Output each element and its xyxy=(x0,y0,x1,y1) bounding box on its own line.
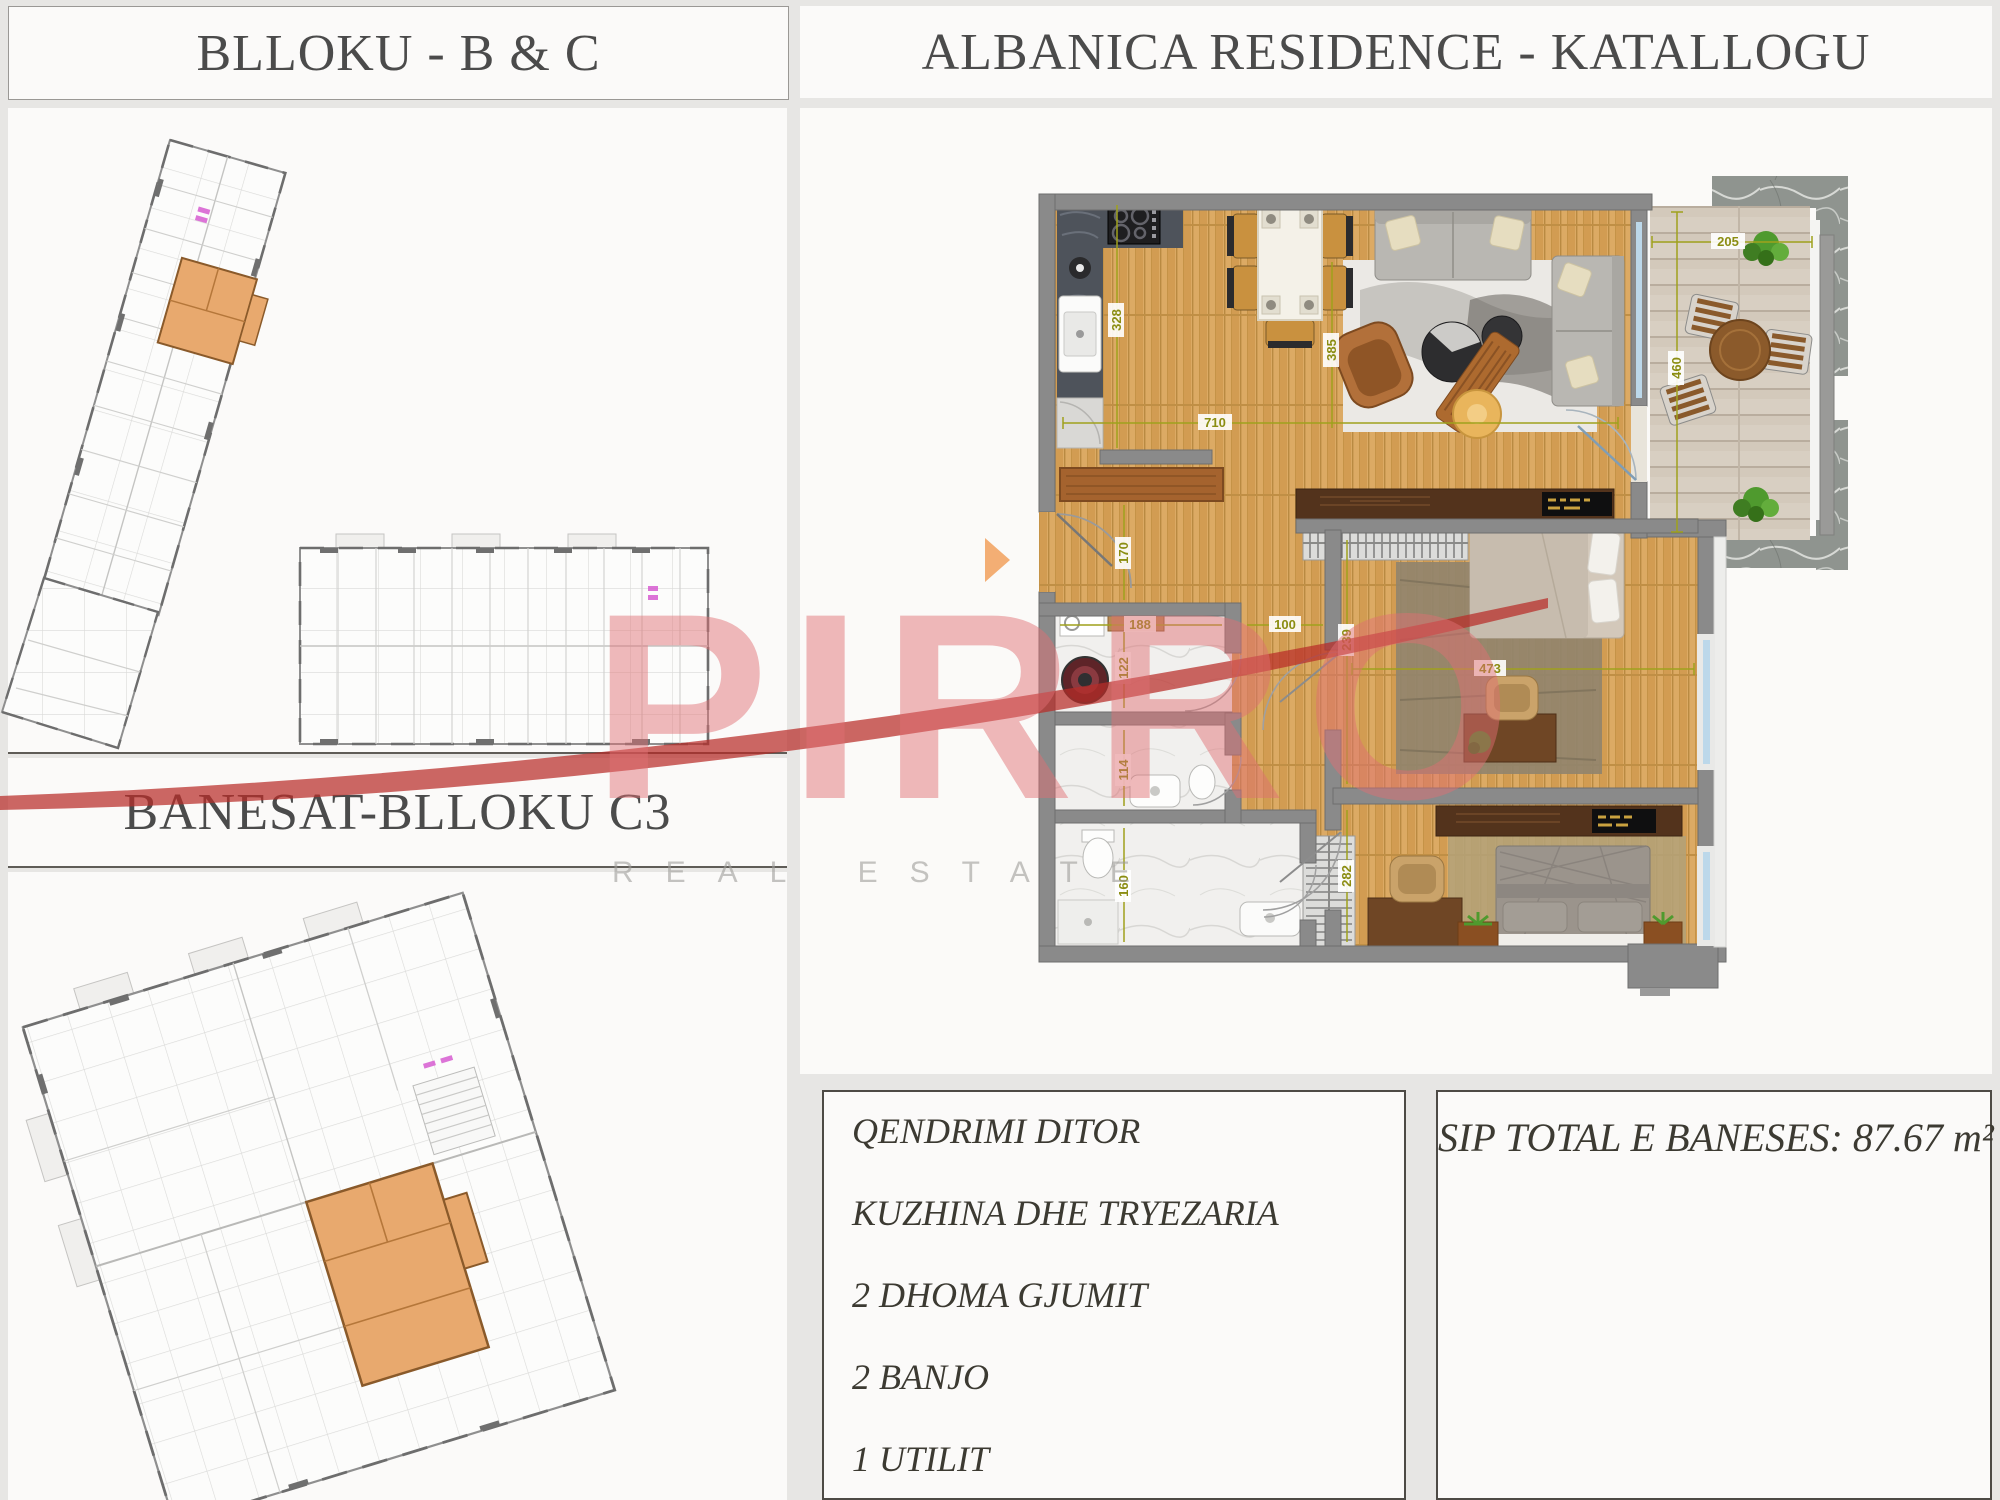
total-area-panel: SIP TOTAL E BANESES: 87.67 m² xyxy=(1436,1090,1992,1500)
right-title-panel: ALBANICA RESIDENCE - KATALLOGU xyxy=(800,6,1992,98)
site-plans-panel xyxy=(8,108,787,754)
apartment-features-panel: QENDRIMI DITOR KUZHINA DHE TRYEZARIA 2 D… xyxy=(822,1090,1406,1500)
feature-item: KUZHINA DHE TRYEZARIA xyxy=(852,1192,1279,1234)
left-title-panel: BLLOKU - B & C xyxy=(8,6,789,100)
banesat-title-panel: BANESAT-BLLOKU C3 xyxy=(8,758,787,868)
apartment-plan-panel xyxy=(800,108,1992,1074)
catalog-page: { "titles": { "left_top": "BLLOKU - B & … xyxy=(0,0,2000,1500)
feature-item: 2 DHOMA GJUMIT xyxy=(852,1274,1147,1316)
feature-item: 1 UTILIT xyxy=(852,1438,989,1480)
feature-item: QENDRIMI DITOR xyxy=(852,1110,1140,1152)
blloku-c3-plan-panel xyxy=(8,872,787,1500)
page-title-blloku-bc: BLLOKU - B & C xyxy=(197,24,601,83)
section-title-banesat-c3: BANESAT-BLLOKU C3 xyxy=(123,783,671,842)
feature-item: 2 BANJO xyxy=(852,1356,989,1398)
page-title-albanica: ALBANICA RESIDENCE - KATALLOGU xyxy=(922,23,1871,82)
total-area-value: SIP TOTAL E BANESES: 87.67 m² xyxy=(1438,1114,1990,1161)
